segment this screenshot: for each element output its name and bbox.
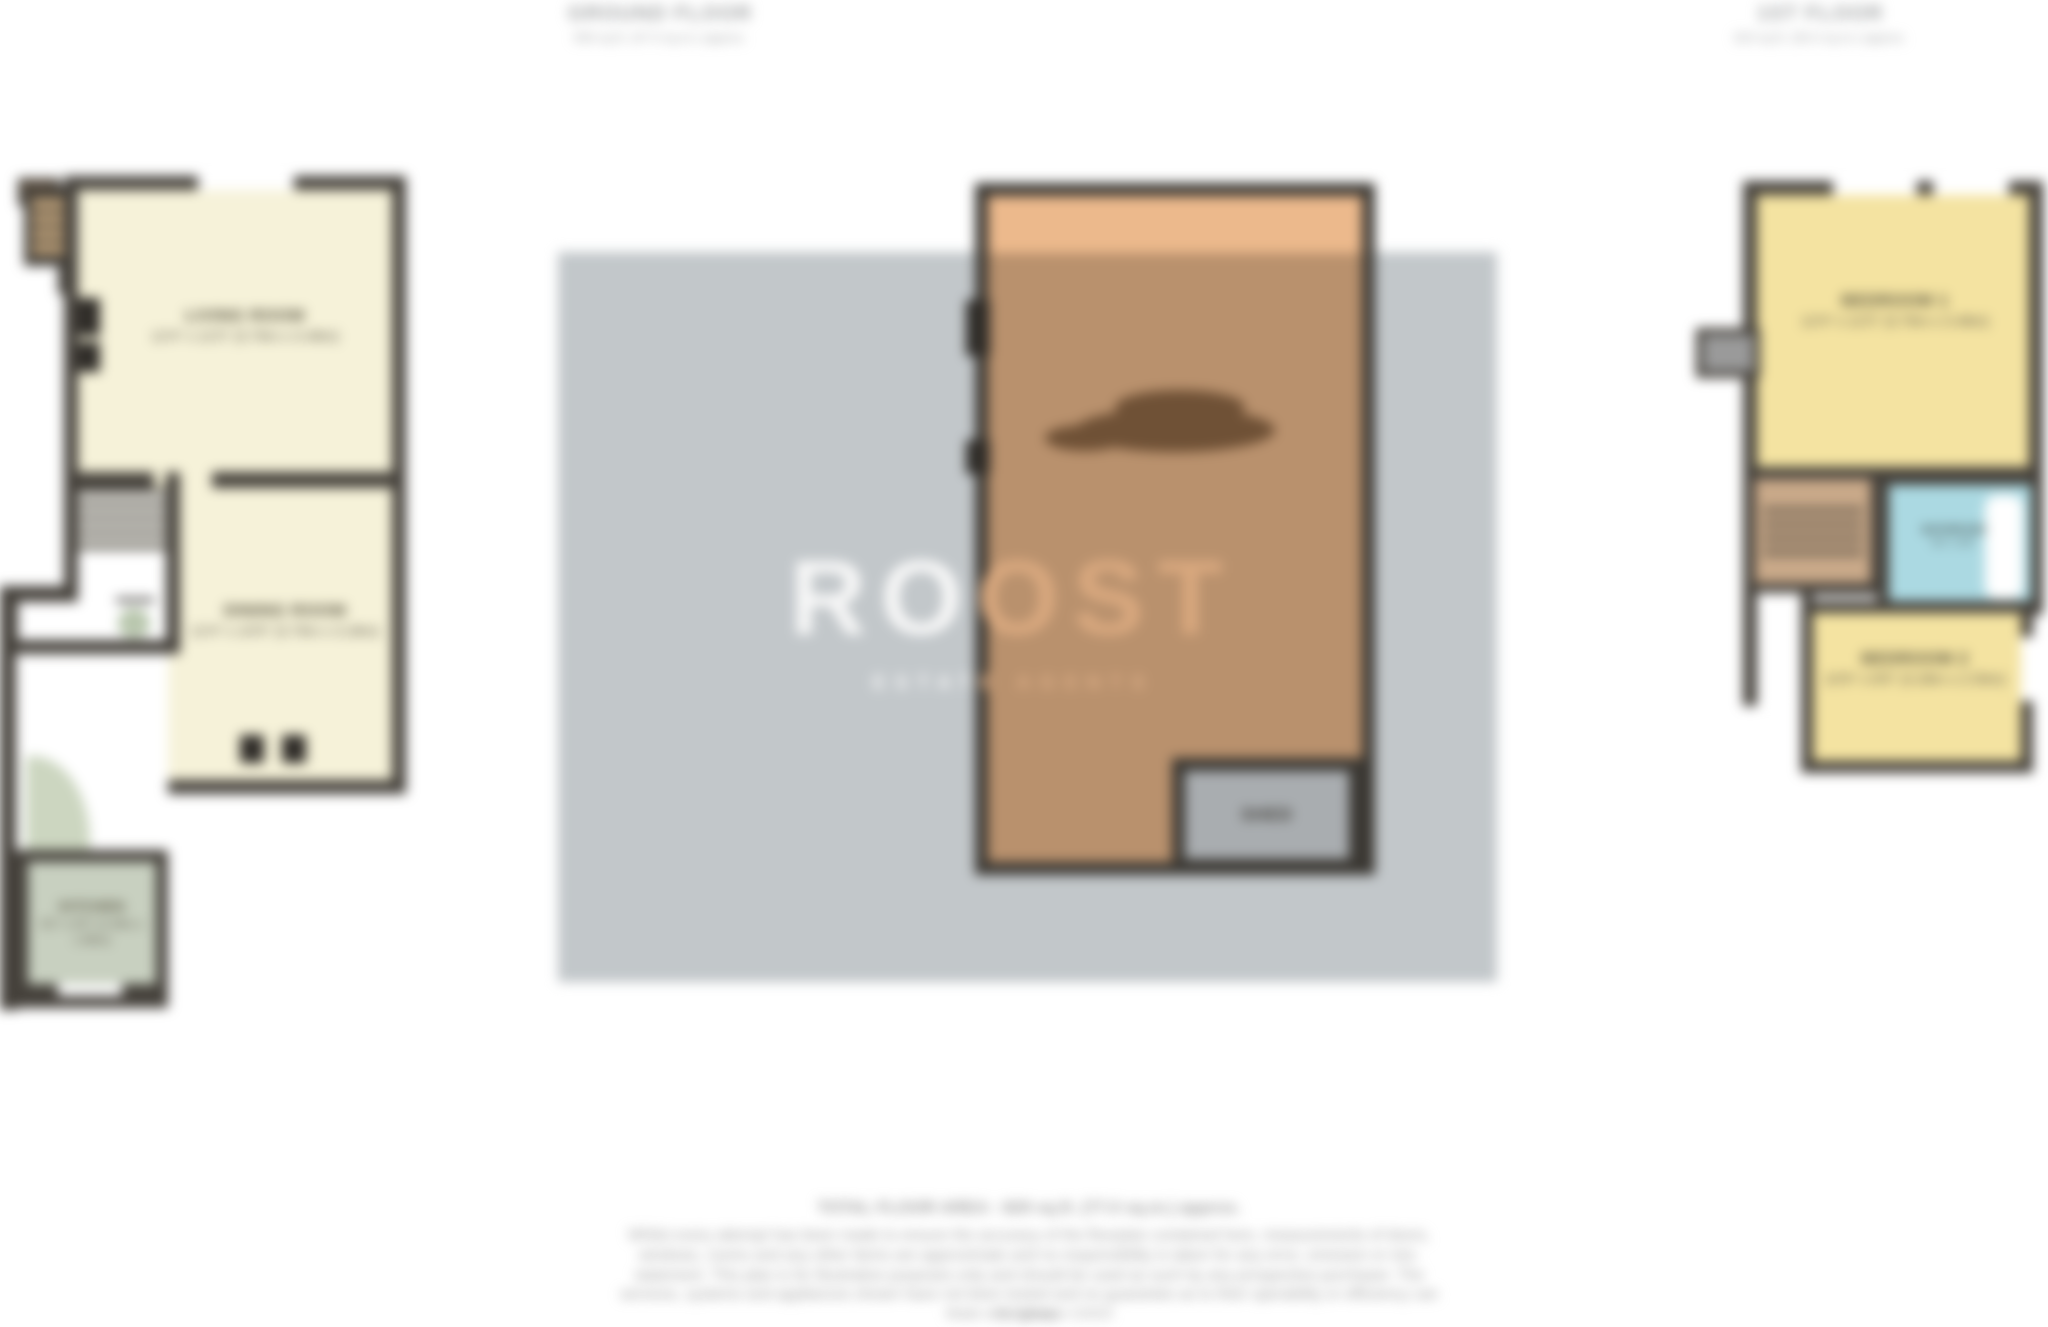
blurred-scene: GROUND FLOOR 506 sq.ft. (47.0 sq.m.) app… [0, 0, 2048, 1327]
landing-hall [1757, 593, 1801, 703]
staircase-mid [78, 488, 166, 552]
room-name: BEDROOM 2 [1805, 648, 2025, 671]
floorplan-page: GROUND FLOOR 506 sq.ft. (47.0 sq.m.) app… [0, 0, 2048, 1327]
room-dims: 12'4" x 11'5" (3.76m x 3.48m) [130, 328, 360, 348]
window-gap [1833, 181, 1917, 195]
dining-room-label: DINING ROOM 12'4" x 10'9" (3.76m x 3.28m… [170, 600, 400, 643]
room-dims: 8'2" x 6'5" (2.49m x 1.96m) [28, 916, 156, 948]
chimney-breast [78, 298, 100, 336]
yard-wall [0, 586, 78, 602]
kitchen: KITCHEN 8'2" x 6'5" (2.49m x 1.96m) [16, 850, 168, 996]
internal-wall [16, 640, 168, 654]
room-dims: 8'2" x 5'5" [1899, 537, 2009, 550]
internal-wall [78, 472, 154, 488]
ground-floor-header: GROUND FLOOR 506 sq.ft. (47.0 sq.m.) app… [480, 2, 840, 45]
window-gap [58, 984, 122, 996]
ground-floor-title: GROUND FLOOR [480, 2, 840, 26]
shed: SHED [1172, 758, 1362, 872]
room-name: BATHROOM [1899, 523, 2009, 537]
tree-icon [1045, 425, 1125, 451]
chimney-protrusion [1696, 328, 1760, 378]
toilet-icon [118, 608, 150, 638]
credit-line: Made with Metropix ©2023 [614, 1305, 1444, 1321]
kitchen-label: KITCHEN 8'2" x 6'5" (2.49m x 1.96m) [28, 897, 156, 948]
garden-sunlit-strip [988, 196, 1362, 253]
room-name: DINING ROOM [170, 600, 400, 623]
room-dims: 12'4" x 11'5" (3.76m x 3.48m) [1780, 313, 2010, 333]
bedroom2-label: BEDROOM 2 10'9" x 8'6" (3.28m x 2.59m) [1805, 648, 2025, 691]
bathroom-label: BATHROOM 8'2" x 5'5" [1899, 523, 2009, 550]
room-dims: 12'4" x 10'9" (3.76m x 3.28m) [170, 623, 400, 643]
room-name: KITCHEN [28, 897, 156, 916]
room-name: BEDROOM 1 [1780, 290, 2010, 313]
window-gap [1933, 181, 2009, 195]
total-floor-area: TOTAL FLOOR AREA : 829 sq.ft. (77.0 sq.m… [614, 1198, 1444, 1218]
room-name: LIVING ROOM [130, 305, 360, 328]
tree-icon [1115, 390, 1245, 424]
first-floor-area: 323 sq.ft. (30.0 sq.m.) approx. [1640, 30, 2000, 45]
staircase-first [1763, 508, 1863, 556]
bathroom: BATHROOM 8'2" x 5'5" [1877, 473, 2043, 615]
window-gap [198, 176, 294, 190]
first-floor-header: 1ST FLOOR 323 sq.ft. (30.0 sq.m.) approx… [1640, 2, 2000, 45]
door-symbol [282, 735, 306, 763]
living-room-label: LIVING ROOM 12'4" x 11'5" (3.76m x 3.48m… [130, 305, 360, 348]
bedroom1-label: BEDROOM 1 12'4" x 11'5" (3.76m x 3.48m) [1780, 290, 2010, 333]
wall-segment [1743, 590, 1757, 706]
first-floor-title: 1ST FLOOR [1640, 2, 2000, 26]
shed-label: SHED [1241, 805, 1292, 825]
chimney-breast [78, 342, 100, 372]
room-dims: 10'9" x 8'6" (3.28m x 2.59m) [1805, 671, 2025, 691]
internal-wall [212, 472, 392, 488]
ground-floor-area: 506 sq.ft. (47.0 sq.m.) approx. [480, 30, 840, 45]
garden-wall-jamb [966, 440, 990, 474]
door-symbol [240, 735, 264, 763]
garden-wall-jamb [966, 300, 990, 356]
